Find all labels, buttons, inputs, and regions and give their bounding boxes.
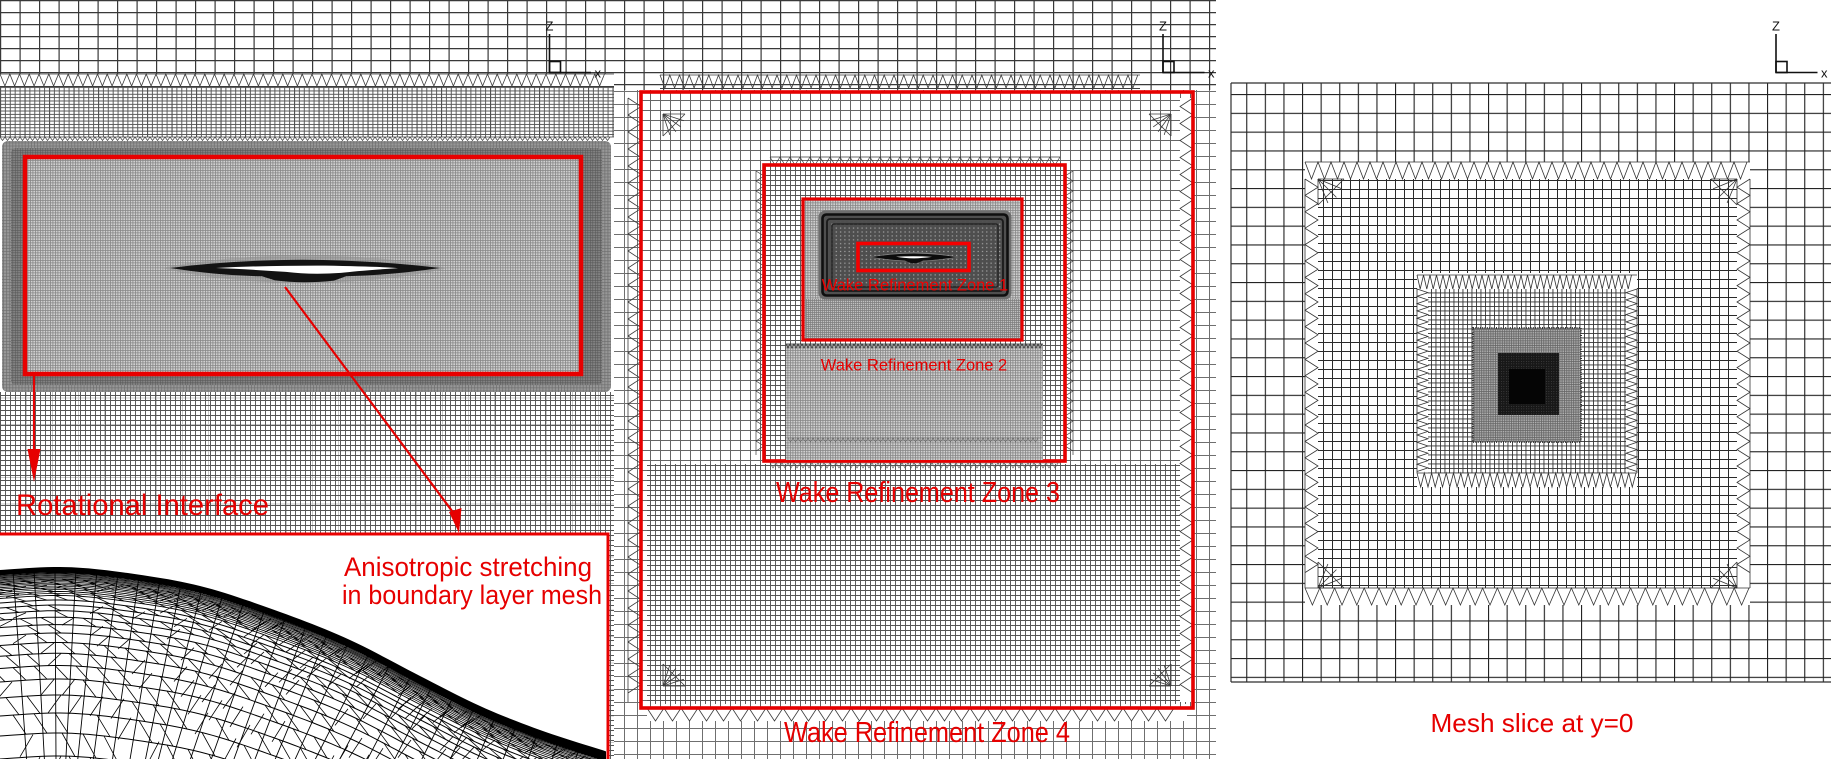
svg-text:x: x [595, 66, 602, 81]
svg-text:Wake Refinement Zone 2: Wake Refinement Zone 2 [821, 356, 1007, 374]
svg-text:Anisotropic stretching: Anisotropic stretching [344, 552, 592, 582]
svg-text:Z: Z [1159, 19, 1167, 34]
svg-text:Mesh slice at y=0: Mesh slice at y=0 [1431, 708, 1634, 738]
svg-text:x: x [1821, 66, 1828, 81]
svg-text:Wake Refinement Zone 4: Wake Refinement Zone 4 [784, 717, 1070, 749]
svg-text:Z: Z [1772, 19, 1780, 34]
svg-text:Rotational Interface: Rotational Interface [16, 489, 269, 522]
svg-text:Wake Refinement Zone 3: Wake Refinement Zone 3 [776, 477, 1060, 509]
svg-text:Z: Z [546, 19, 554, 34]
svg-text:x: x [1208, 66, 1215, 81]
svg-text:Wake Refinement Zone 1: Wake Refinement Zone 1 [822, 277, 1008, 295]
svg-text:in boundary layer mesh: in boundary layer mesh [342, 580, 602, 610]
